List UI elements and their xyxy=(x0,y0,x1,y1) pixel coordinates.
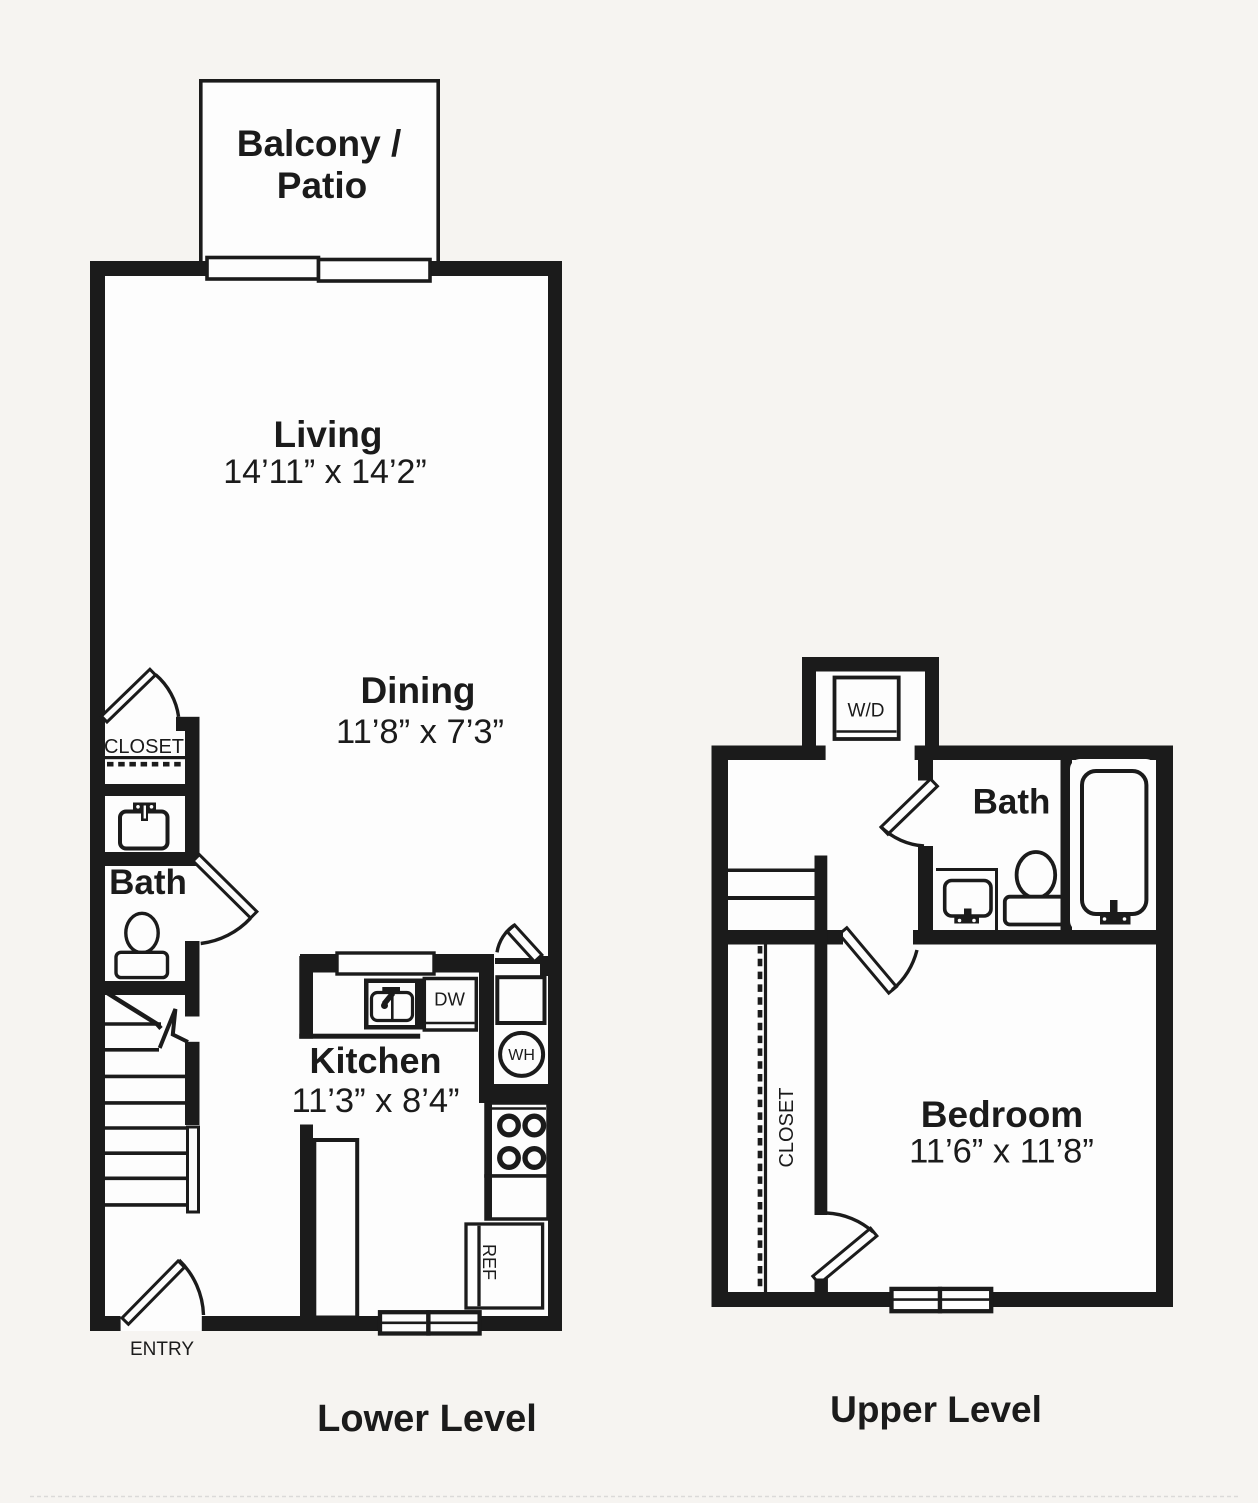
svg-text:Dining: Dining xyxy=(360,670,475,711)
svg-text:W/D: W/D xyxy=(848,701,885,722)
svg-text:REF: REF xyxy=(479,1244,499,1280)
svg-text:CLOSET: CLOSET xyxy=(104,736,184,758)
svg-text:Bath: Bath xyxy=(973,783,1051,822)
svg-text:DW: DW xyxy=(434,989,465,1010)
svg-text:Balcony /: Balcony / xyxy=(237,123,402,164)
svg-text:Kitchen: Kitchen xyxy=(309,1040,441,1081)
svg-text:WH: WH xyxy=(508,1047,535,1064)
svg-text:Bath: Bath xyxy=(109,863,187,902)
svg-text:Lower Level: Lower Level xyxy=(317,1398,537,1440)
svg-text:11’3” x 8’4”: 11’3” x 8’4” xyxy=(291,1082,459,1120)
svg-text:Bedroom: Bedroom xyxy=(921,1094,1083,1135)
svg-text:ENTRY: ENTRY xyxy=(130,1339,194,1360)
svg-text:14’11” x 14’2”: 14’11” x 14’2” xyxy=(223,453,427,491)
svg-text:Upper Level: Upper Level xyxy=(830,1389,1042,1430)
svg-text:11’8” x 7’3”: 11’8” x 7’3” xyxy=(336,713,504,751)
svg-text:CLOSET: CLOSET xyxy=(776,1087,798,1167)
svg-text:11’6” x 11’8”: 11’6” x 11’8” xyxy=(909,1133,1094,1171)
svg-text:Living: Living xyxy=(274,414,383,455)
svg-text:Patio: Patio xyxy=(277,165,367,206)
